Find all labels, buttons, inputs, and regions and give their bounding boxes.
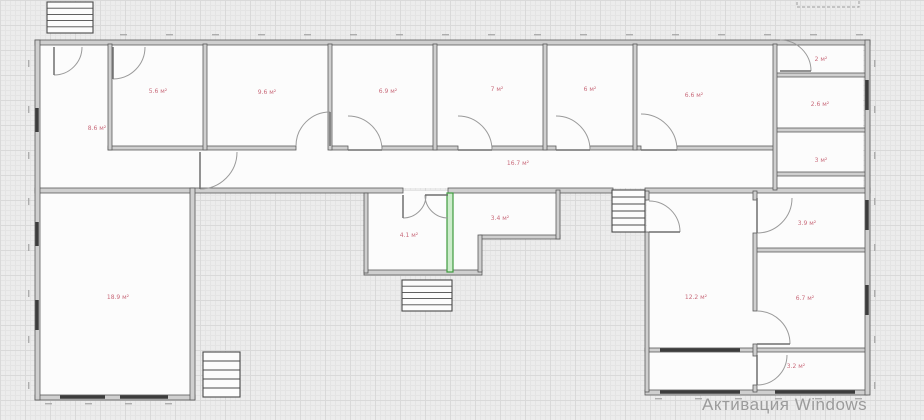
wall[interactable] [203, 44, 207, 150]
dimension-mark [534, 34, 541, 35]
wall[interactable] [645, 188, 870, 193]
wall[interactable] [773, 44, 777, 190]
dashed-selection-rect [797, 0, 859, 7]
dimension-mark [764, 34, 771, 35]
dimension-mark [28, 336, 29, 343]
dimension-mark [626, 34, 633, 35]
wall[interactable] [478, 235, 482, 272]
wall[interactable] [645, 232, 649, 392]
wall[interactable] [480, 235, 560, 239]
room-area-label: 2.6 м² [811, 101, 830, 108]
wall[interactable] [35, 395, 195, 400]
wall[interactable] [753, 385, 757, 392]
wall[interactable] [108, 146, 296, 150]
room-area-label: 4.1 м² [400, 232, 419, 239]
room-area-label: 3.4 м² [491, 215, 510, 222]
room-area-label: 6 м² [584, 86, 597, 93]
dimension-mark [580, 34, 587, 35]
room-floor [37, 191, 190, 395]
wall[interactable] [633, 44, 637, 150]
dimension-mark [28, 106, 29, 113]
dimension-mark [874, 336, 875, 343]
dimension-mark [874, 198, 875, 205]
room-area-label: 9.6 м² [258, 89, 277, 96]
wall[interactable] [645, 191, 649, 200]
dimension-mark [28, 244, 29, 251]
dimension-mark [815, 398, 822, 399]
dimension-mark [442, 34, 449, 35]
wall[interactable] [433, 44, 437, 150]
dimension-mark [258, 34, 265, 35]
dimension-mark [120, 34, 127, 35]
dimension-mark [874, 382, 875, 389]
wall[interactable] [448, 188, 613, 193]
wall[interactable] [753, 344, 757, 356]
wall[interactable] [556, 190, 560, 239]
wall[interactable] [35, 188, 403, 193]
room-area-label: 12.2 м² [685, 294, 708, 301]
dimension-mark [855, 398, 862, 399]
room-area-label: 3.2 м² [787, 363, 806, 370]
room-area-label: 2 м² [815, 56, 828, 63]
dimension-mark [28, 290, 29, 297]
dimension-mark [165, 403, 172, 404]
dimension-mark [874, 152, 875, 159]
room-area-label: 3.9 м² [798, 220, 817, 227]
dimension-mark [874, 106, 875, 113]
wall[interactable] [35, 40, 40, 400]
room-floor [366, 191, 478, 270]
dimension-mark [718, 34, 725, 35]
floor-plan-canvas[interactable]: 8.6 м²5.6 м²9.6 м²6.9 м²7 м²6 м²6.6 м²2 … [0, 0, 924, 420]
dimension-mark [166, 34, 173, 35]
wall[interactable] [543, 44, 547, 150]
room-area-label: 16.7 м² [507, 160, 530, 167]
stairs[interactable] [203, 352, 240, 397]
dimension-mark [28, 382, 29, 389]
dimension-mark [212, 34, 219, 35]
selected-wall[interactable] [447, 193, 453, 272]
dimension-mark [775, 398, 782, 399]
room-area-label: 6.9 м² [379, 88, 398, 95]
dimension-mark [304, 34, 311, 35]
wall[interactable] [775, 172, 867, 176]
wall[interactable] [775, 73, 867, 77]
dimension-mark [350, 34, 357, 35]
wall[interactable] [753, 233, 757, 311]
dimension-mark [810, 34, 817, 35]
room-area-label: 6.6 м² [685, 92, 704, 99]
dimension-mark [695, 398, 702, 399]
room-area-label: 5.6 м² [149, 88, 168, 95]
room-area-label: 6.7 м² [796, 295, 815, 302]
room-area-label: 7 м² [491, 86, 504, 93]
dimension-mark [672, 34, 679, 35]
wall[interactable] [35, 40, 870, 45]
stairs[interactable] [402, 280, 452, 311]
dimension-mark [28, 152, 29, 159]
dimension-mark [396, 34, 403, 35]
room-area-label: 18.9 м² [107, 294, 130, 301]
wall[interactable] [330, 146, 348, 150]
wall[interactable] [382, 146, 458, 150]
floor-plan-drawing[interactable]: 8.6 м²5.6 м²9.6 м²6.9 м²7 м²6 м²6.6 м²2 … [0, 0, 924, 420]
wall[interactable] [364, 193, 368, 273]
dimension-mark [28, 198, 29, 205]
dimension-mark [45, 403, 52, 404]
wall[interactable] [190, 188, 195, 400]
dimension-mark [874, 60, 875, 67]
dimension-mark [655, 398, 662, 399]
dimension-mark [856, 34, 863, 35]
room-area-label: 3 м² [815, 157, 828, 164]
dimension-mark [488, 34, 495, 35]
room-area-label: 8.6 м² [88, 125, 107, 132]
wall[interactable] [755, 248, 867, 252]
dimension-mark [874, 290, 875, 297]
stairs[interactable] [47, 2, 93, 33]
wall[interactable] [677, 146, 775, 150]
wall[interactable] [775, 128, 867, 132]
room-floor [37, 44, 863, 188]
dimension-mark [85, 403, 92, 404]
wall[interactable] [364, 270, 482, 275]
dimension-mark [125, 403, 132, 404]
dimension-mark [735, 398, 742, 399]
dimension-mark [28, 60, 29, 67]
wall[interactable] [108, 44, 112, 150]
dimension-mark [874, 244, 875, 251]
